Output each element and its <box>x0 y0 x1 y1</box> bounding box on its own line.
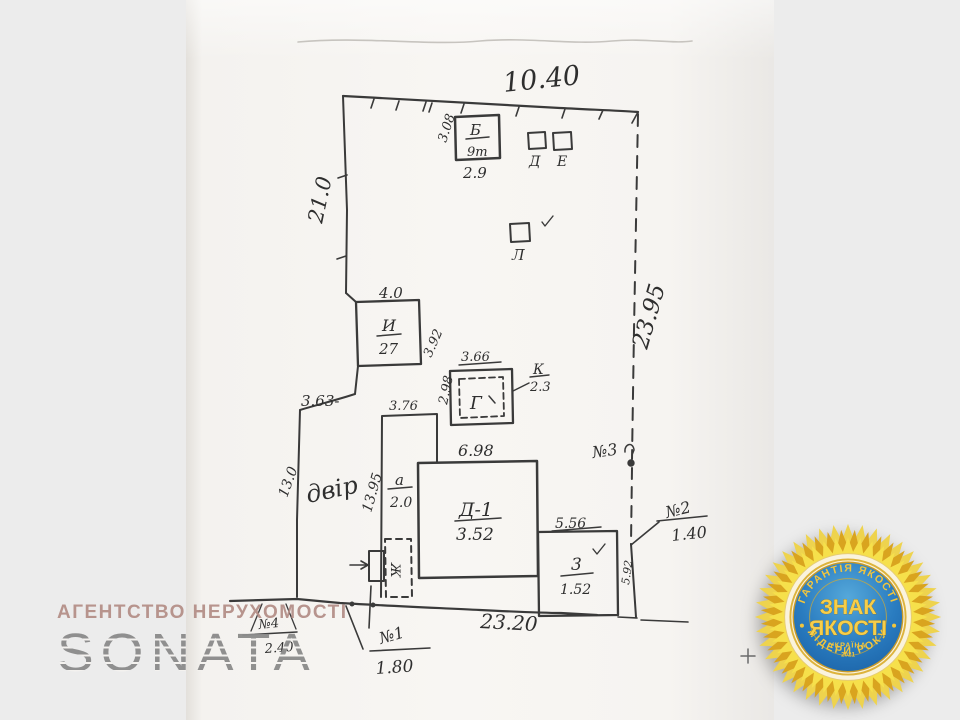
k-label: К <box>532 362 545 378</box>
mark-n1-value: 1.80 <box>375 656 414 679</box>
mark-n3-label: №3 <box>590 440 619 462</box>
boundary-right-dashed-upper <box>632 114 638 459</box>
yard-label: двір <box>303 471 360 509</box>
right-survey-dot <box>628 460 634 466</box>
badge-dot-left <box>800 624 804 628</box>
dim-column-top: 3.76 <box>389 399 418 414</box>
dim-left-length: 21.0 <box>303 174 336 226</box>
building-z-label: 3 <box>571 555 582 575</box>
boundary-right-dashed-lower <box>631 468 632 544</box>
boundary-left <box>343 96 347 293</box>
n2-leader <box>631 522 659 545</box>
building-z-value: 1.52 <box>560 582 591 598</box>
house-label: Д-1 <box>458 499 493 521</box>
badge-dot-right <box>892 624 896 628</box>
mark-n1-label: №1 <box>376 623 407 649</box>
house-value: 3.52 <box>456 525 494 545</box>
paper-fold-line <box>298 40 692 43</box>
a-label: а <box>395 471 404 489</box>
building-b-width: 2.9 <box>462 164 487 182</box>
building-g-top-dim: 3.66 <box>461 350 490 365</box>
boundary-left-jog <box>346 293 356 302</box>
plan-linework <box>230 40 755 663</box>
badge-year: 2021 <box>841 651 855 658</box>
annex-arrow <box>350 561 368 569</box>
building-l-square <box>510 223 530 242</box>
badge-country: УКРАЇНА <box>829 641 866 650</box>
building-i-side-dim: 3.92 <box>421 327 446 360</box>
agency-watermark: АГЕНТСТВО НЕРУХОМОСТІ SONATA <box>57 602 377 683</box>
building-d-square <box>528 132 546 149</box>
building-l-label: Л <box>511 246 525 264</box>
agency-tagline: АГЕНТСТВО НЕРУХОМОСТІ <box>57 602 377 624</box>
zh-label: Ж <box>387 562 402 578</box>
building-d-label: Д <box>528 154 541 170</box>
house-top-dim: 6.98 <box>458 441 494 460</box>
boundary-yard-left <box>297 410 300 597</box>
badge-title-line2: ЯКОСТІ <box>809 617 887 640</box>
building-e-square <box>553 132 572 150</box>
building-g-side-dim: 2.98 <box>436 374 457 406</box>
building-g-label: Г <box>469 393 483 414</box>
building-g-tick <box>489 396 495 403</box>
k-value: 2.3 <box>529 380 551 395</box>
building-b-label: Б <box>469 121 481 139</box>
boundary-top-ticks <box>371 99 638 123</box>
dim-top-width: 10.40 <box>501 60 581 99</box>
building-l-checkmark <box>542 216 553 226</box>
dim-step: 3.63- <box>301 392 339 410</box>
badge-title-line1: ЗНАК <box>820 596 877 619</box>
boundary-top <box>343 96 638 112</box>
boundary-below-i <box>355 366 358 394</box>
a-value: 2.0 <box>389 495 412 511</box>
boundary-bottom-right <box>618 617 688 622</box>
n1-fraction-bar <box>370 648 430 651</box>
building-z-top-dim: 5.56 <box>555 516 586 532</box>
building-i-label: И <box>381 316 397 335</box>
mark-n2-value: 1.40 <box>670 522 707 545</box>
dim-bottom-length: 23.20 <box>479 609 539 636</box>
building-i-top-dim: 4.0 <box>378 284 403 302</box>
quality-badge: ГАРАНТІЯ ЯКОСТІ ЛІДЕРИ РОКУ ЗНАК ЯКОСТІ … <box>752 521 944 713</box>
agency-logo-text: SONATA <box>57 625 377 682</box>
building-z-checkmark <box>593 544 605 554</box>
building-i-area: 27 <box>378 340 399 358</box>
building-e-label: Е <box>556 154 567 170</box>
k-leader-line <box>513 383 529 391</box>
building-b-area: 9т <box>467 145 488 160</box>
